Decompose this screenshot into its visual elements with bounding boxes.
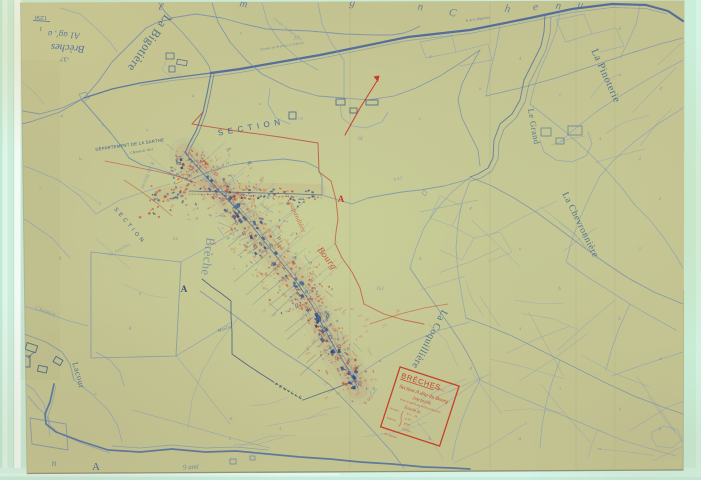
svg-text:154: 154: [267, 274, 272, 278]
svg-text:1: 1: [39, 25, 42, 31]
svg-text:185: 185: [189, 168, 195, 173]
svg-text:A: A: [181, 284, 188, 294]
svg-text:A: A: [338, 194, 345, 204]
svg-text:167: 167: [297, 288, 302, 292]
svg-text:18: 18: [357, 136, 363, 142]
svg-text:u: u: [240, 30, 242, 35]
svg-text:151: 151: [376, 286, 385, 293]
svg-text:u: u: [61, 113, 64, 119]
svg-text:17: 17: [293, 36, 300, 43]
svg-text:363: 363: [223, 183, 229, 187]
svg-text:1250: 1250: [35, 14, 47, 21]
svg-text:188: 188: [358, 334, 364, 339]
svg-text:Brèches: Brèches: [51, 41, 86, 54]
svg-text:14: 14: [172, 236, 178, 242]
svg-text:295: 295: [278, 202, 284, 206]
svg-text:n: n: [52, 458, 57, 468]
svg-text:1 B: 1 B: [297, 116, 304, 121]
svg-text:2: 2: [295, 265, 297, 269]
svg-text:1: 1: [99, 202, 102, 207]
svg-text:4: 4: [129, 326, 132, 332]
svg-text:295: 295: [213, 166, 220, 172]
svg-text:9 ami: 9 ami: [183, 462, 199, 471]
svg-text:2: 2: [196, 152, 198, 156]
svg-text:A: A: [92, 461, 100, 473]
svg-text:43: 43: [248, 161, 252, 165]
svg-text:-37: -37: [59, 55, 69, 64]
svg-text:43: 43: [247, 251, 251, 255]
